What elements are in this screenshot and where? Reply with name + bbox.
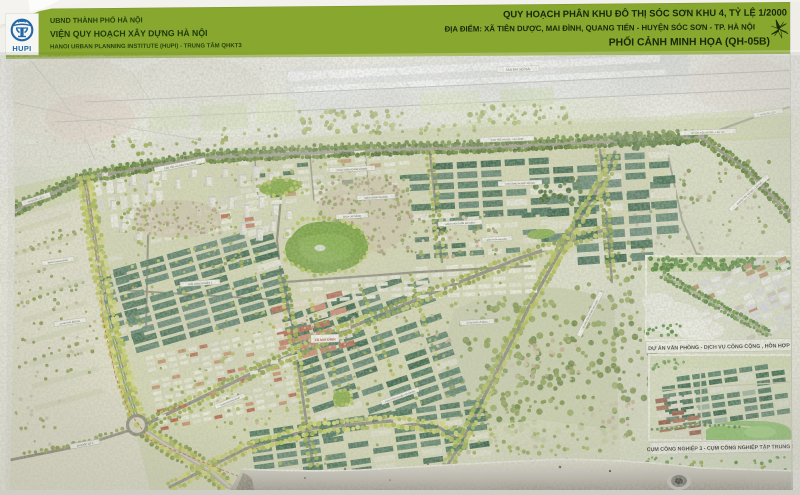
svg-text:QUY HOẠCH PHÂN KHU ĐÔ THỊ SÓC: QUY HOẠCH PHÂN KHU ĐÔ THỊ SÓC SƠN KHU 4,… <box>503 7 787 20</box>
svg-text:HUPI: HUPI <box>12 44 31 53</box>
svg-text:VIỆN QUY HOẠCH XÂY DỰNG HÀ NỘI: VIỆN QUY HOẠCH XÂY DỰNG HÀ NỘI <box>50 27 208 39</box>
svg-text:UBND THÀNH PHỐ HÀ NỘI: UBND THÀNH PHỐ HÀ NỘI <box>50 14 143 25</box>
svg-text:HANOI URBAN PLANNING INSTITUTE: HANOI URBAN PLANNING INSTITUTE (HUPI) - … <box>50 42 242 50</box>
